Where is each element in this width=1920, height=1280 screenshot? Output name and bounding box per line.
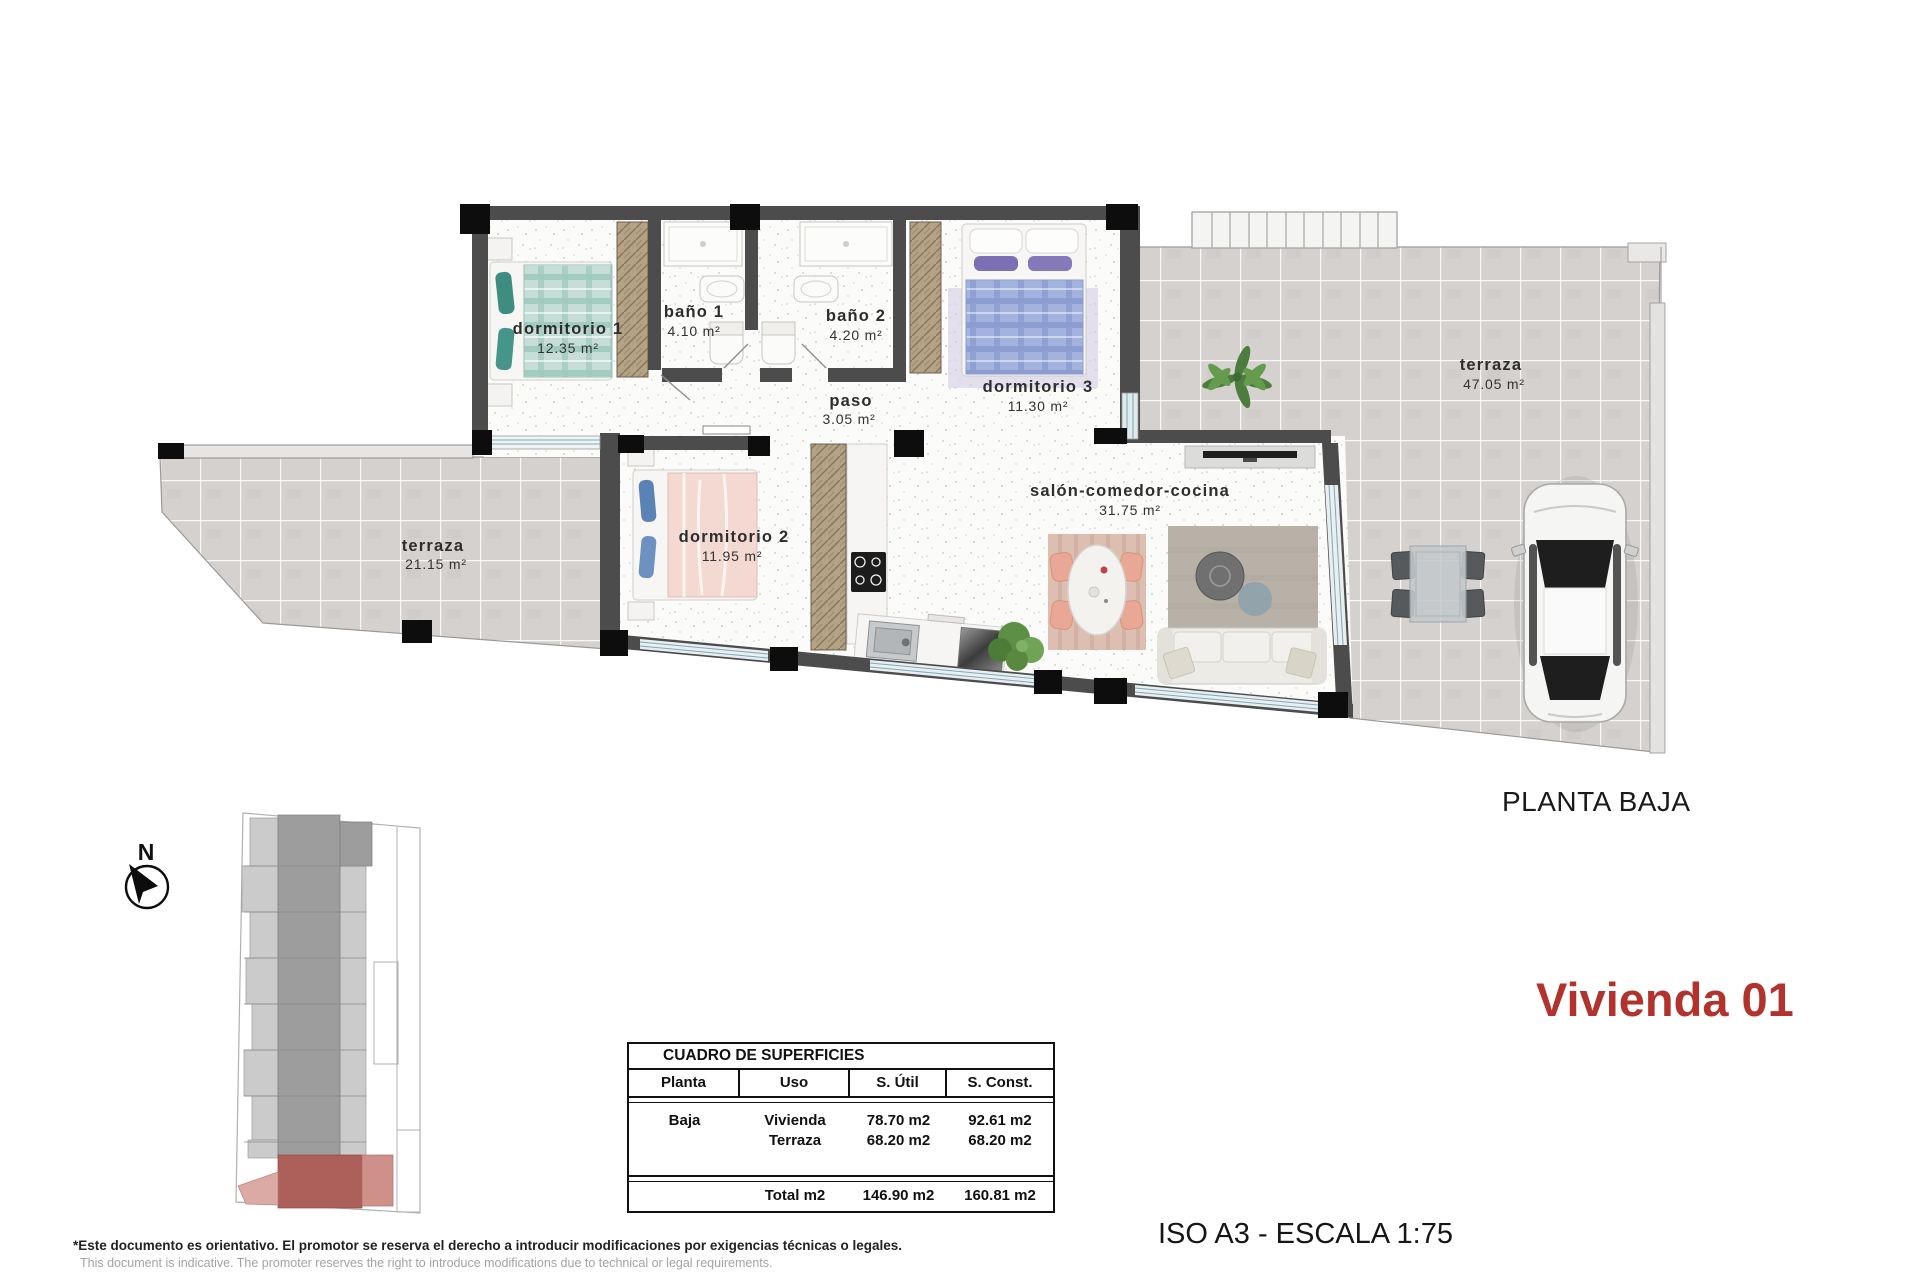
col-s-util: S. Útil	[850, 1070, 947, 1096]
terrace-left-floor	[160, 457, 620, 650]
cell-planta-blank	[629, 1132, 740, 1149]
room-area-bano-2: 4.20 m²	[829, 327, 882, 343]
room-label-terraza-left: terraza	[402, 537, 465, 555]
room-label-dormitorio-3: dormitorio 3	[983, 378, 1094, 396]
car	[1511, 476, 1639, 732]
table-divider	[629, 1175, 1053, 1182]
cell-total-label: Total m2	[740, 1187, 850, 1204]
wardrobe-dormitorio-2	[811, 444, 846, 650]
col-uso: Uso	[740, 1070, 850, 1096]
window-dormitorio-1	[490, 436, 600, 449]
surface-table-title: CUADRO DE SUPERFICIES	[629, 1044, 1053, 1070]
sofa	[1158, 628, 1326, 684]
room-area-salon: 31.75 m²	[1099, 502, 1161, 518]
minimap-highlighted-unit	[278, 1155, 362, 1208]
cell-util-terraza: 68.20 m2	[850, 1132, 947, 1149]
unit-title: Vivienda 01	[1536, 972, 1794, 1027]
room-label-terraza-right: terraza	[1460, 356, 1523, 374]
tv-unit	[1185, 446, 1315, 468]
room-label-dormitorio-1: dormitorio 1	[513, 320, 624, 338]
wardrobe-dormitorio-1	[617, 222, 648, 377]
compass-n-label: N	[138, 839, 155, 865]
room-label-bano-2: baño 2	[826, 307, 886, 325]
scale-label: ISO A3 - ESCALA 1:75	[1158, 1218, 1453, 1251]
cell-planta-baja: Baja	[629, 1112, 740, 1129]
terrace-corner-notch	[1628, 243, 1666, 262]
terrace-right-parapet	[1650, 303, 1665, 753]
stairs	[1192, 212, 1397, 248]
surface-table: CUADRO DE SUPERFICIES Planta Uso S. Útil…	[627, 1042, 1055, 1213]
cell-total-blank	[629, 1187, 740, 1204]
room-area-terraza-right: 47.05 m²	[1463, 376, 1525, 392]
col-s-const: S. Const.	[947, 1070, 1053, 1096]
surface-table-total-row: Total m2 146.90 m2 160.81 m2	[629, 1182, 1053, 1211]
floor-plan-page: dormitorio 1 12.35 m² baño 1 4.10 m² bañ…	[0, 0, 1920, 1280]
dining-set	[1048, 534, 1146, 650]
surface-table-header: Planta Uso S. Útil S. Const.	[629, 1070, 1053, 1096]
room-label-dormitorio-2: dormitorio 2	[679, 528, 790, 546]
cell-const-vivienda: 92.61 m2	[947, 1112, 1053, 1129]
room-area-terraza-left: 21.15 m²	[405, 556, 467, 572]
salon-rug	[1168, 526, 1318, 630]
disclaimer-spanish: *Este documento es orientativo. El promo…	[73, 1238, 902, 1253]
bed-dormitorio-3	[948, 224, 1098, 388]
table-divider	[629, 1096, 1053, 1103]
cell-const-terraza: 68.20 m2	[947, 1132, 1053, 1149]
room-area-dormitorio-3: 11.30 m²	[1008, 398, 1069, 414]
room-label-salon: salón-comedor-cocina	[1030, 482, 1230, 500]
floor-title: PLANTA BAJA	[1502, 786, 1691, 818]
room-label-paso: paso	[829, 392, 872, 410]
door-leaf-dormitorio-2	[703, 426, 750, 434]
terrace-left-rail	[162, 445, 473, 458]
cell-uso-vivienda: Vivienda	[740, 1112, 850, 1129]
site-minimap	[236, 813, 420, 1213]
wardrobe-dormitorio-3	[910, 222, 941, 373]
disclaimer-english: This document is indicative. The promote…	[80, 1256, 772, 1270]
room-area-bano-1: 4.10 m²	[667, 323, 720, 339]
cell-total-const: 160.81 m2	[947, 1187, 1053, 1204]
room-area-paso: 3.05 m²	[822, 411, 875, 427]
cell-util-vivienda: 78.70 m2	[850, 1112, 947, 1129]
room-label-bano-1: baño 1	[664, 303, 724, 321]
room-area-dormitorio-1: 12.35 m²	[537, 340, 599, 356]
surface-table-body: Baja Vivienda 78.70 m2 92.61 m2 Terraza …	[629, 1103, 1053, 1175]
col-planta: Planta	[629, 1070, 740, 1096]
cell-total-util: 146.90 m2	[850, 1187, 947, 1204]
cell-uso-terraza: Terraza	[740, 1132, 850, 1149]
compass: N	[126, 839, 168, 908]
room-area-dormitorio-2: 11.95 m²	[702, 548, 763, 564]
